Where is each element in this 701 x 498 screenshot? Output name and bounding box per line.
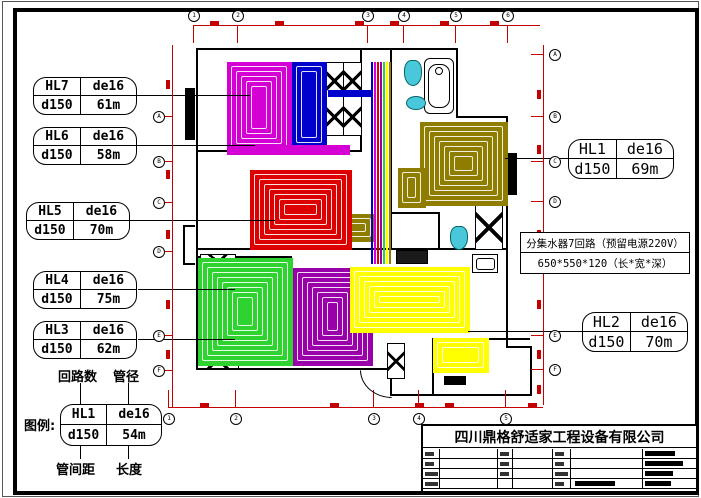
wall (390, 394, 532, 396)
title-block-table (423, 449, 696, 489)
pipe-spacing: d150 (583, 332, 631, 351)
circuit-id: HL4 (34, 272, 81, 290)
grid-axis-bubble: 4 (398, 10, 410, 22)
toilet-icon (404, 60, 422, 86)
wall (438, 212, 440, 250)
grid-axis-bubble: D (549, 196, 561, 208)
bathtub (424, 58, 454, 114)
circuit-id: HL5 (27, 203, 74, 221)
stove-icon (444, 376, 466, 385)
bath-blue-loop (292, 62, 327, 148)
wall (392, 212, 440, 214)
pipe-size: de16 (617, 140, 673, 159)
wall (507, 153, 517, 195)
pipe-spacing: d150 (34, 96, 81, 114)
title-block: 四川鼎格舒适家工程设备有限公司 (421, 424, 698, 493)
circuit-label-hl7: HL7 de16 d150 61m (33, 77, 137, 115)
leader-line (468, 331, 582, 332)
company-name: 四川鼎格舒适家工程设备有限公司 (423, 426, 696, 448)
manifold-note-line2: 650*550*120（长*宽*深） (520, 252, 690, 274)
wall (530, 346, 532, 396)
legend-connector-line (128, 444, 129, 459)
grid-axis-bubble: 2 (230, 413, 242, 425)
pipe-spacing: d150 (34, 146, 81, 164)
bath-supply-pipe (328, 90, 372, 97)
leader-line (138, 339, 235, 340)
pipe-size: de16 (81, 272, 136, 290)
leader-line (135, 95, 250, 96)
loop-length: 70m (631, 332, 687, 351)
floor-heating-drawing: 12345612345ABCDEFABCDEF HL7 de16 d150 61… (0, 0, 701, 498)
HL1-branch (398, 168, 426, 208)
legend-connector-line (80, 444, 81, 459)
circuit-label-hl2: HL2 de16 d150 70m (582, 312, 688, 352)
leader-line (125, 220, 275, 221)
HL5-loop (250, 170, 352, 250)
HL7-loop (227, 62, 292, 154)
grid-axis-bubble: D (153, 246, 165, 258)
HL2-kitchen-loop (433, 338, 489, 373)
pipe-spacing: d150 (34, 340, 81, 358)
pipe-size: de16 (81, 322, 136, 340)
loop-length: 70m (74, 221, 129, 239)
circuit-id: HL3 (34, 322, 81, 340)
supply-pipe (374, 62, 376, 264)
hatched-shaft-icon (475, 205, 503, 250)
wall (183, 225, 185, 265)
circuit-id: HL1 (569, 140, 617, 159)
circuit-label-hl4: HL4 de16 d150 75m (33, 271, 137, 309)
legend-label-pipe-spacing: 管间距 (56, 459, 95, 478)
loop-length: 54m (107, 425, 161, 445)
pipe-spacing: d150 (569, 159, 617, 178)
pipe-size: de16 (81, 78, 136, 96)
legend-prefix: 图例: (24, 415, 55, 434)
grid-axis-bubble: A (549, 49, 561, 61)
kitchen-sink-icon (472, 254, 498, 273)
circuit-label-hl1: HL1 de16 d150 69m (568, 139, 674, 179)
pipe-size: de16 (631, 313, 687, 332)
circuit-label-hl3: HL3 de16 d150 62m (33, 321, 137, 359)
supply-pipe (389, 62, 391, 264)
wall (456, 48, 458, 118)
supply-pipe (380, 62, 382, 264)
legend-sample-label: HL1 de16 d150 54m (60, 404, 162, 446)
pipe-size: de16 (81, 128, 136, 146)
circuit-label-hl6: HL6 de16 d150 58m (33, 127, 137, 165)
grid-axis-bubble: C (153, 197, 165, 209)
supply-pipe (377, 62, 379, 264)
legend-label-circuit-count: 回路数 (58, 366, 97, 385)
manifold (396, 250, 428, 264)
HL1-loop (420, 122, 508, 206)
legend-label-pipe-size: 管径 (113, 366, 139, 385)
grid-axis-bubble: 1 (163, 413, 175, 425)
supply-pipe (386, 62, 388, 264)
supply-pipe (383, 62, 385, 264)
pipe-spacing: d150 (34, 290, 81, 308)
wall (456, 116, 508, 118)
wall (506, 346, 532, 348)
circuit-label-hl5: HL5 de16 d150 70m (26, 202, 130, 240)
pipe-spacing: d150 (27, 221, 74, 239)
pipe-spacing: d150 (61, 425, 107, 445)
circuit-id: HL7 (34, 78, 81, 96)
legend-connector-line (80, 383, 81, 404)
HL7-return-strip (227, 145, 350, 155)
sink-icon (406, 96, 426, 110)
grid-axis-bubble: C (549, 156, 561, 168)
loop-length: 69m (617, 159, 673, 178)
pipe-size: de16 (107, 405, 161, 425)
hatched-shaft-icon (343, 62, 362, 136)
pipe-size: de16 (74, 203, 129, 221)
leader-line (138, 289, 235, 290)
circuit-id: HL1 (61, 405, 107, 425)
manifold-note-line1: 分集水器7回路（预留电源220V） (520, 232, 690, 254)
circuit-id: HL6 (34, 128, 81, 146)
bathtub-drain-icon (435, 67, 443, 75)
leader-line (135, 145, 255, 146)
grid-axis-bubble: B (549, 111, 561, 123)
toilet2-icon (450, 226, 468, 250)
grid-axis-bubble: 5 (450, 10, 462, 22)
grid-axis-bubble: A (153, 111, 165, 123)
grid-axis-bubble: F (549, 364, 561, 376)
loop-length: 62m (81, 340, 136, 358)
hatched-shaft-icon (325, 62, 344, 136)
legend-label-length: 长度 (116, 459, 142, 478)
wall (196, 48, 458, 50)
grid-axis-bubble: 6 (502, 10, 514, 22)
grid-axis-bubble: 1 (188, 10, 200, 22)
wall (183, 263, 195, 265)
loop-length: 61m (81, 96, 136, 114)
legend-connector-line (128, 383, 129, 404)
grid-axis-bubble: 2 (232, 10, 244, 22)
grid-axis-bubble: 3 (368, 413, 380, 425)
loop-length: 58m (81, 146, 136, 164)
grid-axis-bubble: E (549, 330, 561, 342)
grid-axis-bubble: B (153, 156, 165, 168)
loop-length: 75m (81, 290, 136, 308)
grid-axis-bubble: F (153, 365, 165, 377)
HL3-loop (198, 258, 293, 366)
circuit-id: HL2 (583, 313, 631, 332)
HL2-loop (350, 267, 470, 333)
wall (183, 225, 195, 227)
grid-axis-bubble: E (153, 330, 165, 342)
